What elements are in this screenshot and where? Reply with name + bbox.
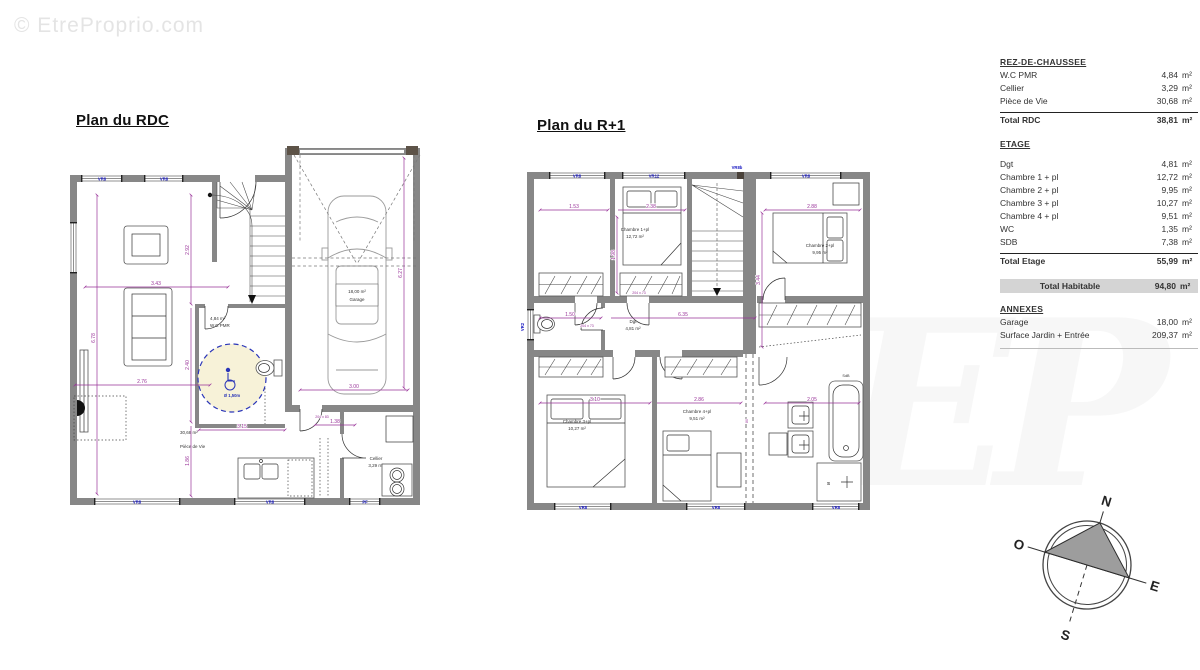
washbasin-icon [788,402,813,428]
svg-text:9,51 m²: 9,51 m² [689,416,705,421]
window-label: VR8 [266,500,275,505]
toilet-icon [256,360,282,376]
svg-text:80: 80 [745,419,749,423]
svg-text:12,72 m²: 12,72 m² [626,234,644,239]
svg-text:18,00 m²: 18,00 m² [348,289,366,294]
svg-text:Chambre 2+pl: Chambre 2+pl [806,243,834,248]
svg-text:S: S [827,481,830,486]
table-row: Chambre 1 + pl12,72m² [1000,171,1198,184]
table-row: Chambre 3 + pl10,27m² [1000,197,1198,210]
rdc-walls [70,146,420,505]
svg-text:W.C PMR: W.C PMR [210,323,230,328]
window-label: PF [362,500,368,505]
svg-text:1.86: 1.86 [185,456,191,466]
svg-text:2.86: 2.86 [694,397,704,403]
svg-text:3.15: 3.15 [237,424,247,430]
rdc-plan-title: Plan du RDC [76,112,169,129]
svg-text:Chambre 3+pl: Chambre 3+pl [563,419,591,424]
r1-floorplan: VR8 VR12 VR8 VR8b VR8 VR8 VR8 VR2 [515,155,885,525]
svg-text:10,27 m²: 10,27 m² [568,426,586,431]
svg-text:2.38: 2.38 [646,204,656,210]
svg-text:1.38: 1.38 [330,419,340,425]
svg-text:204 x 73: 204 x 73 [632,291,645,295]
window-label: VR8 [160,176,169,181]
window-label: VR8 [579,505,588,510]
r1-stairs [692,183,743,296]
svg-text:1.98: 1.98 [611,250,617,260]
section-header-annexes: ANNEXES [1000,303,1198,316]
total-rdc-row: Total RDC38,81m² [1000,112,1198,128]
svg-text:3.43: 3.43 [151,281,161,287]
table-row: Pièce de Vie30,68m² [1000,95,1198,108]
svg-text:2.88: 2.88 [807,204,817,210]
svg-text:Ø 1,50m: Ø 1,50m [224,393,241,398]
bed-ch3 [547,395,625,487]
svg-text:Cellier: Cellier [370,456,383,461]
compass-needle [1045,510,1142,578]
table-row: Cellier3,29m² [1000,82,1198,95]
svg-text:2.92: 2.92 [185,245,191,255]
window-label: VR8 [133,500,142,505]
svg-text:9,95 m²: 9,95 m² [812,250,828,255]
bed-ch1 [623,187,681,265]
window-label: VR8 [832,505,841,510]
kitchen-counter [238,458,314,498]
rdc-windows: VR8 VR8 VR8 VR8 PF [70,149,404,505]
rdc-floorplan: VR8 VR8 VR8 VR8 PF [60,138,430,516]
svg-text:1.53: 1.53 [569,204,579,210]
compass-rose: N O E S [1010,485,1195,670]
table-row: Dgt4,81m² [1000,158,1198,171]
washbasin-icon [788,431,813,457]
rdc-cellier: Cellier 3,29 m² [368,416,413,496]
svg-text:3.00: 3.00 [349,384,359,390]
rdc-stairs [208,182,285,304]
window-label: VR8 [573,173,582,178]
svg-text:6.78: 6.78 [91,333,97,343]
compass-east-label: E [1148,578,1161,595]
r1-plan-title: Plan du R+1 [537,117,625,134]
bathtub-icon [829,381,863,461]
window-label: VR8 [802,173,811,178]
svg-text:Chambre 4+pl: Chambre 4+pl [683,409,711,414]
svg-text:3.44: 3.44 [756,275,762,285]
table-row: Chambre 4 + pl9,51m² [1000,210,1198,223]
svg-text:Chambre 1+pl: Chambre 1+pl [621,227,649,232]
shelf [80,350,88,432]
svg-text:3.10: 3.10 [590,397,600,403]
svg-text:6.35: 6.35 [678,312,688,318]
laundry-sink-icon [382,464,412,496]
r1-furniture: S [534,183,863,501]
compass-west-label: O [1012,536,1026,553]
svg-text:6.27: 6.27 [398,268,404,278]
bed-ch4 [663,431,741,501]
window-label: VR12 [649,173,660,178]
svg-text:Pièce de Vie: Pièce de Vie [180,444,206,449]
table-row: WC1,35m² [1000,223,1198,236]
table-row: Surface Jardin + Entrée209,37m² [1000,329,1198,342]
svg-text:204 x 73: 204 x 73 [580,324,593,328]
table-end-line [1000,348,1198,349]
sofa [124,288,172,366]
surface-table: REZ-DE-CHAUSSEE W.C PMR4,84m² Cellier3,2… [1000,56,1198,349]
svg-text:2.76: 2.76 [137,379,147,385]
washing-machine-icon: S [817,463,861,501]
svg-text:Garage: Garage [349,297,365,302]
table-row: Garage18,00m² [1000,316,1198,329]
table-row: SDB7,38m² [1000,236,1198,249]
compass-south-label: S [1059,627,1072,644]
rdc-wc-pmr: Ø 1,50m 4,84 m² W.C PMR [198,316,282,424]
svg-text:30,68 m²: 30,68 m² [180,430,198,435]
svg-text:204 x 83: 204 x 83 [315,415,328,419]
svg-text:2.40: 2.40 [185,360,191,370]
pmr-turning-circle [198,344,266,412]
window-label: VR2 [520,322,525,331]
watermark-text: © EtreProprio.com [14,14,204,38]
svg-text:4,84 m²: 4,84 m² [210,316,226,321]
table-row: Chambre 2 + pl9,95m² [1000,184,1198,197]
section-header-etage: ETAGE [1000,138,1198,151]
table-row: W.C PMR4,84m² [1000,69,1198,82]
total-habitable-row: Total Habitable94,80m² [1000,279,1198,293]
compass-north-label: N [1100,493,1114,510]
window-label: VR8 [98,176,107,181]
svg-text:2.05: 2.05 [807,397,817,403]
window-label: VR8b [732,165,743,170]
armchair [124,226,168,264]
floorplan-page: © EtreProprio.com EP Plan du RDC Plan du… [0,0,1200,670]
svg-text:SdB: SdB [842,374,850,378]
total-etage-row: Total Etage55,99m² [1000,253,1198,269]
svg-text:4,81 m²: 4,81 m² [625,326,641,331]
svg-text:Dgt: Dgt [629,319,637,324]
window-label: VR8 [712,505,721,510]
svg-text:1.50: 1.50 [565,312,575,318]
section-header-rdc: REZ-DE-CHAUSSEE [1000,56,1198,69]
